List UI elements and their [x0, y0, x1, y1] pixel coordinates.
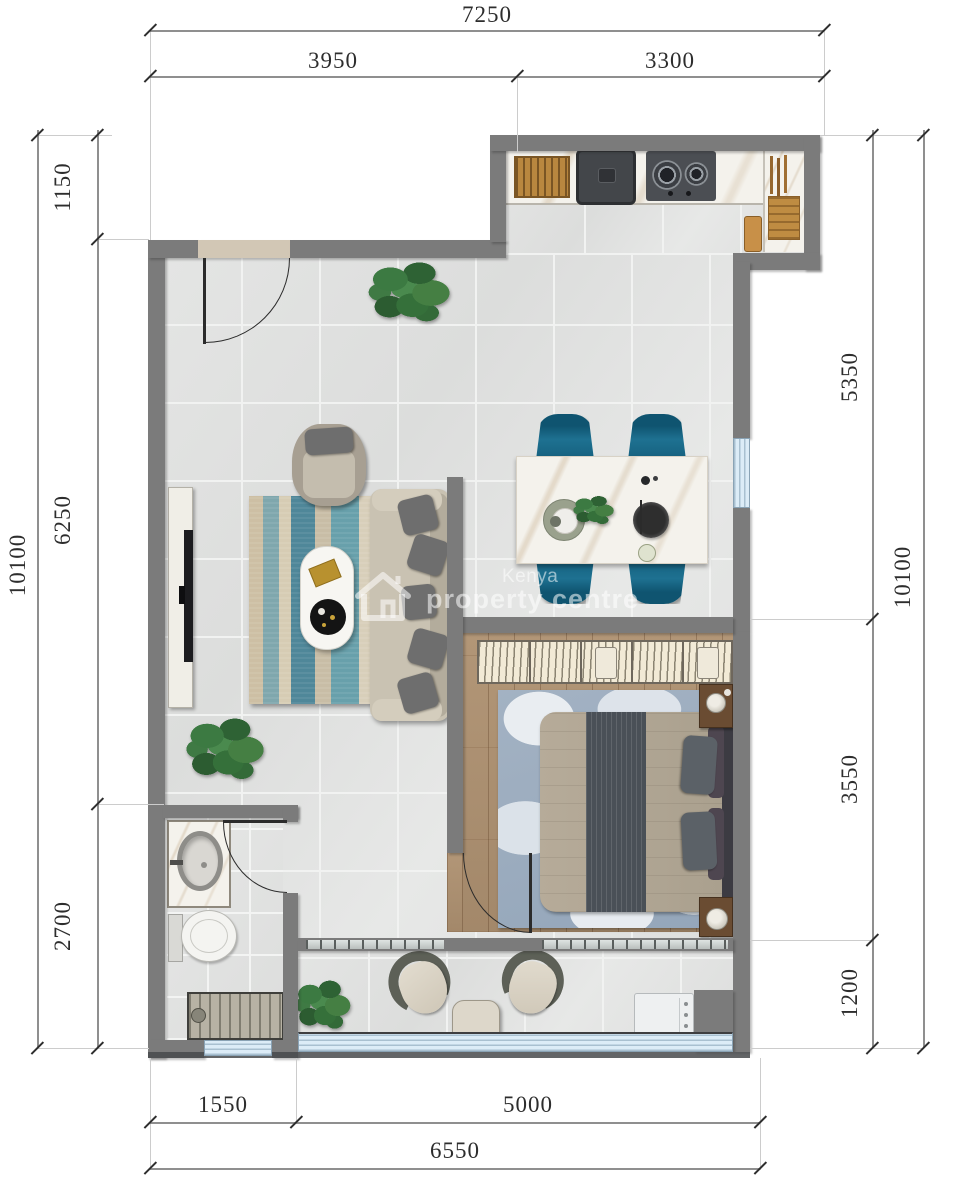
watermark-brand-bottom: property centre: [426, 584, 639, 615]
table-lamp: [706, 908, 728, 930]
bottle-icon: [641, 476, 650, 485]
toilet-seat-line: [190, 919, 228, 953]
folded-clothes: [697, 647, 719, 679]
bathroom-window: [204, 1040, 272, 1056]
dark-plate: [633, 502, 669, 538]
dim-left-seg-1: 1150: [50, 127, 76, 247]
coffee-table: [300, 546, 354, 650]
dim-right-total: 10100: [890, 517, 916, 637]
table-lamp: [706, 693, 726, 713]
armchair-cushion: [303, 450, 355, 498]
watermark-text: Kenya property centre: [426, 566, 639, 615]
tray-item: [322, 623, 326, 627]
dim-bottom-seg-2: 5000: [468, 1092, 588, 1118]
dim-bottom-seg-1: 1550: [163, 1092, 283, 1118]
nightstand: [699, 897, 733, 937]
wall-bathroom-top: [163, 805, 298, 818]
dim-top-seg-1: 3950: [273, 48, 393, 74]
potted-plant: [182, 714, 266, 792]
tv: [184, 530, 193, 662]
dim-left-total: 10100: [5, 505, 31, 625]
toilet-bowl: [181, 910, 237, 962]
kitchen-sink: [576, 149, 636, 205]
wall-kitchen-left: [490, 135, 506, 242]
faucet-icon: [598, 168, 616, 183]
potted-plant: [292, 977, 352, 1039]
bedroom-entry-nook-floor: [447, 853, 462, 932]
dim-bottom-total: 6550: [395, 1138, 515, 1164]
bed-pillow: [681, 811, 718, 871]
dim-right-seg-1: 5350: [837, 317, 863, 437]
spoon-icon: [640, 500, 642, 534]
dim-left-seg-3: 2700: [50, 866, 76, 986]
potted-plant: [364, 258, 452, 334]
dining-window: [733, 438, 750, 508]
wardrobe-divider: [580, 642, 582, 682]
extension-line: [750, 619, 873, 620]
gas-stove: [646, 151, 716, 201]
wall-right-upper: [733, 262, 750, 438]
tv-mount: [179, 586, 185, 604]
nightstand-cup: [724, 689, 731, 696]
sliding-door-living-balcony: [306, 940, 444, 949]
dim-right-seg-2: 3550: [837, 719, 863, 839]
wall-right-lower: [733, 632, 750, 1052]
folded-clothes: [595, 647, 617, 679]
wall-kitchen-right: [804, 135, 820, 270]
decor-book: [308, 558, 341, 587]
round-tray: [310, 599, 346, 635]
cutting-board: [744, 216, 762, 252]
dim-top-seg-2: 3300: [610, 48, 730, 74]
wardrobe-divider: [682, 642, 684, 682]
wardrobe-divider: [529, 642, 531, 682]
extension-line: [824, 30, 825, 136]
house-icon: [352, 566, 414, 624]
extension-line: [296, 1058, 297, 1124]
shower-drain-knob: [191, 1008, 206, 1023]
wall-top-left: [148, 240, 198, 258]
dish-rack: [514, 156, 570, 198]
entry-threshold: [198, 240, 290, 258]
faucet-icon: [170, 860, 183, 865]
wall-kitchen-top: [490, 135, 820, 151]
bed-runner: [586, 712, 646, 912]
dim-right-seg-3: 1200: [837, 933, 863, 1053]
wardrobe: [477, 640, 733, 684]
wooden-spoons-icon: [770, 156, 773, 194]
dim-line-bottom-segments: [150, 1122, 760, 1124]
watermark: Kenya property centre: [352, 566, 639, 624]
tray-item: [330, 615, 335, 620]
extension-line: [150, 30, 151, 240]
dim-line-top-total: [150, 30, 824, 32]
extension-line: [760, 1058, 761, 1170]
wall-left: [148, 240, 165, 1058]
extension-line: [37, 1048, 149, 1049]
bathroom-vanity: [167, 820, 231, 908]
extension-line: [97, 804, 164, 805]
dining-chair: [628, 414, 686, 460]
wall-living-bedroom: [447, 477, 463, 853]
nightstand: [699, 684, 733, 728]
plate-center: [550, 516, 561, 527]
cup: [638, 544, 656, 562]
wall-bathroom-right: [283, 893, 298, 1040]
wardrobe-divider: [631, 642, 633, 682]
stove-knob: [668, 191, 673, 196]
wall-right-mid: [733, 508, 750, 632]
extension-line: [97, 239, 149, 240]
sliding-window-bedroom-balcony: [542, 940, 728, 949]
entry-door-leaf: [203, 258, 206, 344]
dim-line-top-segments: [150, 76, 824, 78]
dim-line-left-total: [37, 130, 39, 1048]
extension-line: [517, 76, 518, 152]
dim-line-right-total: [923, 130, 925, 1048]
bedroom-door-leaf: [529, 853, 532, 933]
tray-item: [318, 608, 325, 615]
armchair-pillow: [304, 426, 354, 455]
bathroom-door-leaf: [223, 820, 287, 823]
balcony-window: [298, 1032, 733, 1052]
dining-chair: [536, 414, 594, 460]
extension-line: [150, 1058, 151, 1170]
dim-line-left-segments: [97, 130, 99, 1048]
drain-dot: [201, 862, 207, 868]
dim-line-bottom-total: [150, 1168, 760, 1170]
wall-top-mid: [290, 240, 506, 258]
armchair: [292, 424, 366, 506]
sink-basin: [177, 831, 223, 891]
utensil-holder: [768, 196, 800, 240]
dim-top-total: 7250: [427, 2, 547, 28]
table-centerpiece-plant: [571, 494, 615, 530]
bed-pillow: [680, 735, 718, 795]
washer-door-line: [679, 998, 680, 1035]
dim-line-right-segments: [872, 130, 874, 1048]
stove-knob: [686, 191, 691, 196]
washer-buttons: [684, 1002, 688, 1006]
floor-plan-page: Kenya property centre 7250: [0, 0, 954, 1200]
dim-left-seg-2: 6250: [50, 460, 76, 580]
